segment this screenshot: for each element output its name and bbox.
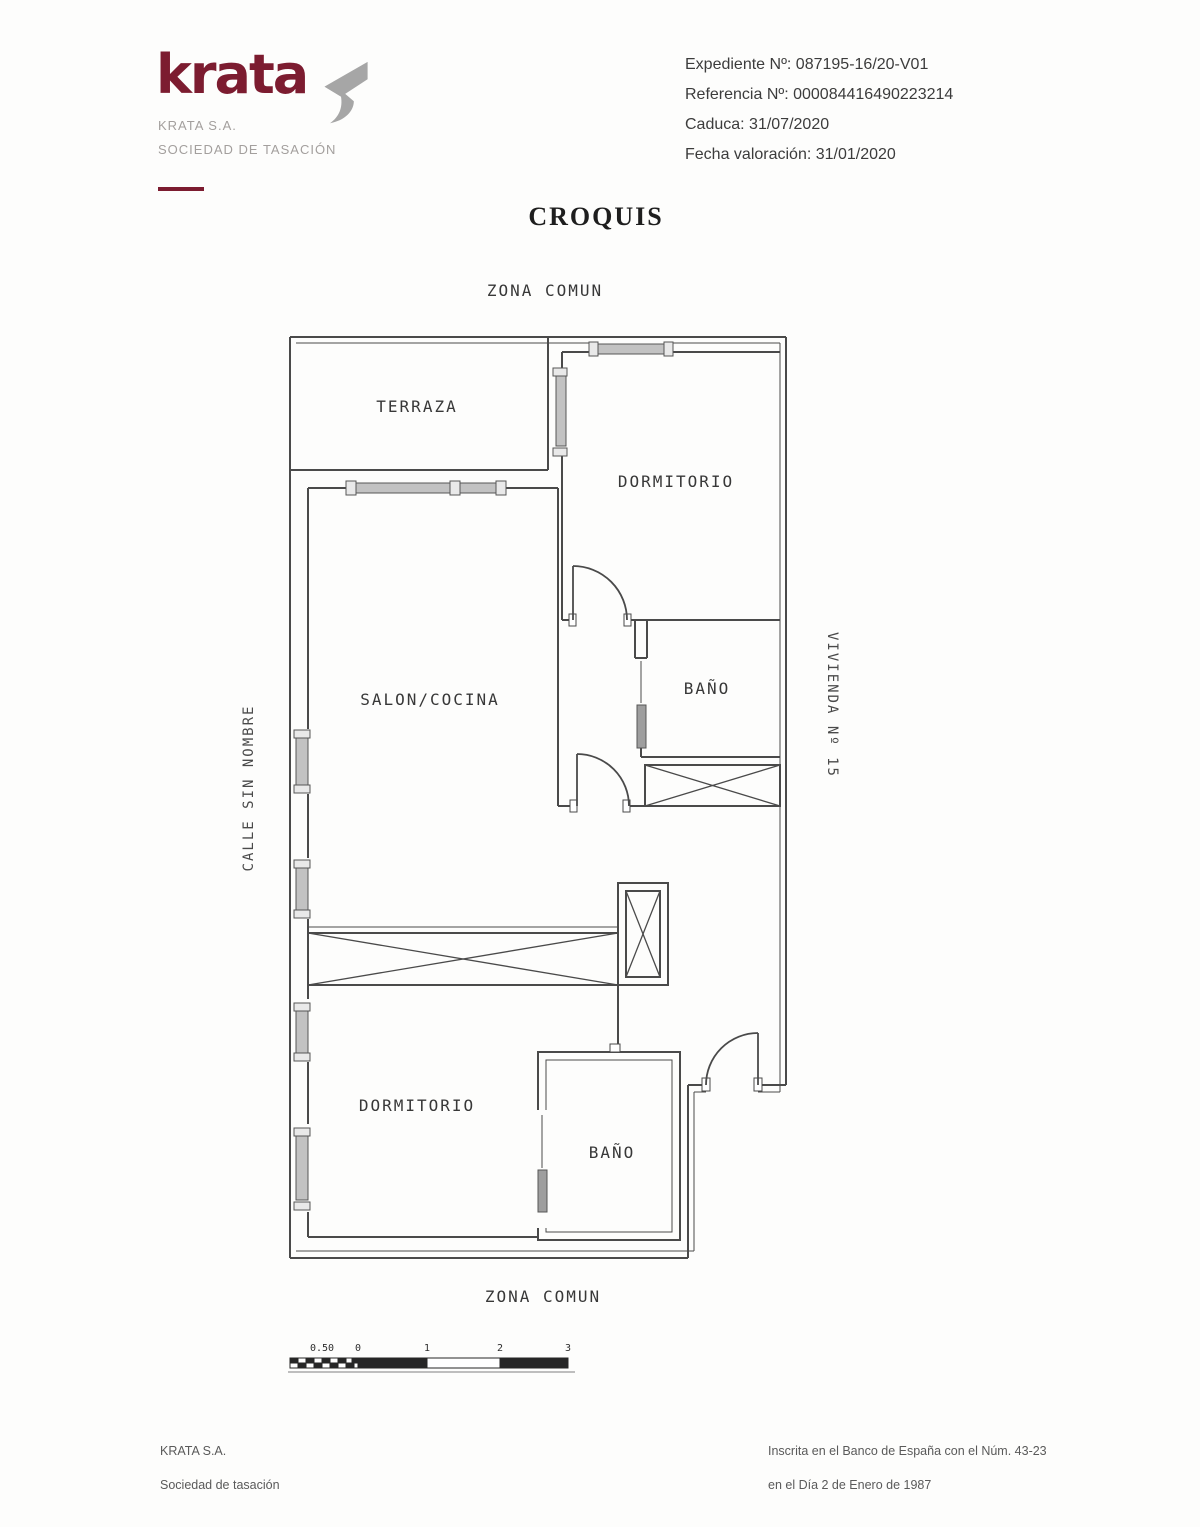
unit-label: VIVIENDA Nº 15	[824, 632, 840, 778]
room-label-dormitorio-1: DORMITORIO	[618, 472, 734, 491]
scale-bar: 0.50 0 1 2 3	[288, 1343, 575, 1372]
footer-company-name: KRATA S.A.	[160, 1444, 226, 1458]
room-label-bano-2: BAÑO	[589, 1143, 636, 1162]
scale-tick-2: 2	[497, 1343, 503, 1354]
scale-tick-3: 3	[565, 1343, 571, 1354]
room-label-salon-cocina: SALON/COCINA	[360, 690, 500, 709]
room-label-terraza: TERRAZA	[376, 397, 457, 416]
zona-comun-bottom-label: ZONA COMUN	[485, 1287, 601, 1306]
room-label-dormitorio-2: DORMITORIO	[359, 1096, 475, 1115]
street-label: CALLE SIN NOMBRE	[241, 705, 257, 872]
scale-tick-1: 1	[424, 1343, 430, 1354]
footer-registration-line2: en el Día 2 de Enero de 1987	[768, 1478, 931, 1492]
footer-registration-line1: Inscrita en el Banco de España con el Nú…	[768, 1444, 1047, 1458]
scale-tick-0-50: 0.50	[310, 1343, 334, 1354]
footer-company-subtitle: Sociedad de tasación	[160, 1478, 280, 1492]
zona-comun-top-label: ZONA COMUN	[487, 281, 603, 300]
document-page: krata KRATA S.A. SOCIEDAD DE TASACIÓN Ex…	[0, 0, 1200, 1527]
room-label-bano-1: BAÑO	[684, 679, 731, 698]
floor-plan: ZONA COMUN TERRAZA DORMITORIO SALON/COCI…	[0, 0, 1200, 1527]
scale-tick-0: 0	[355, 1343, 361, 1354]
